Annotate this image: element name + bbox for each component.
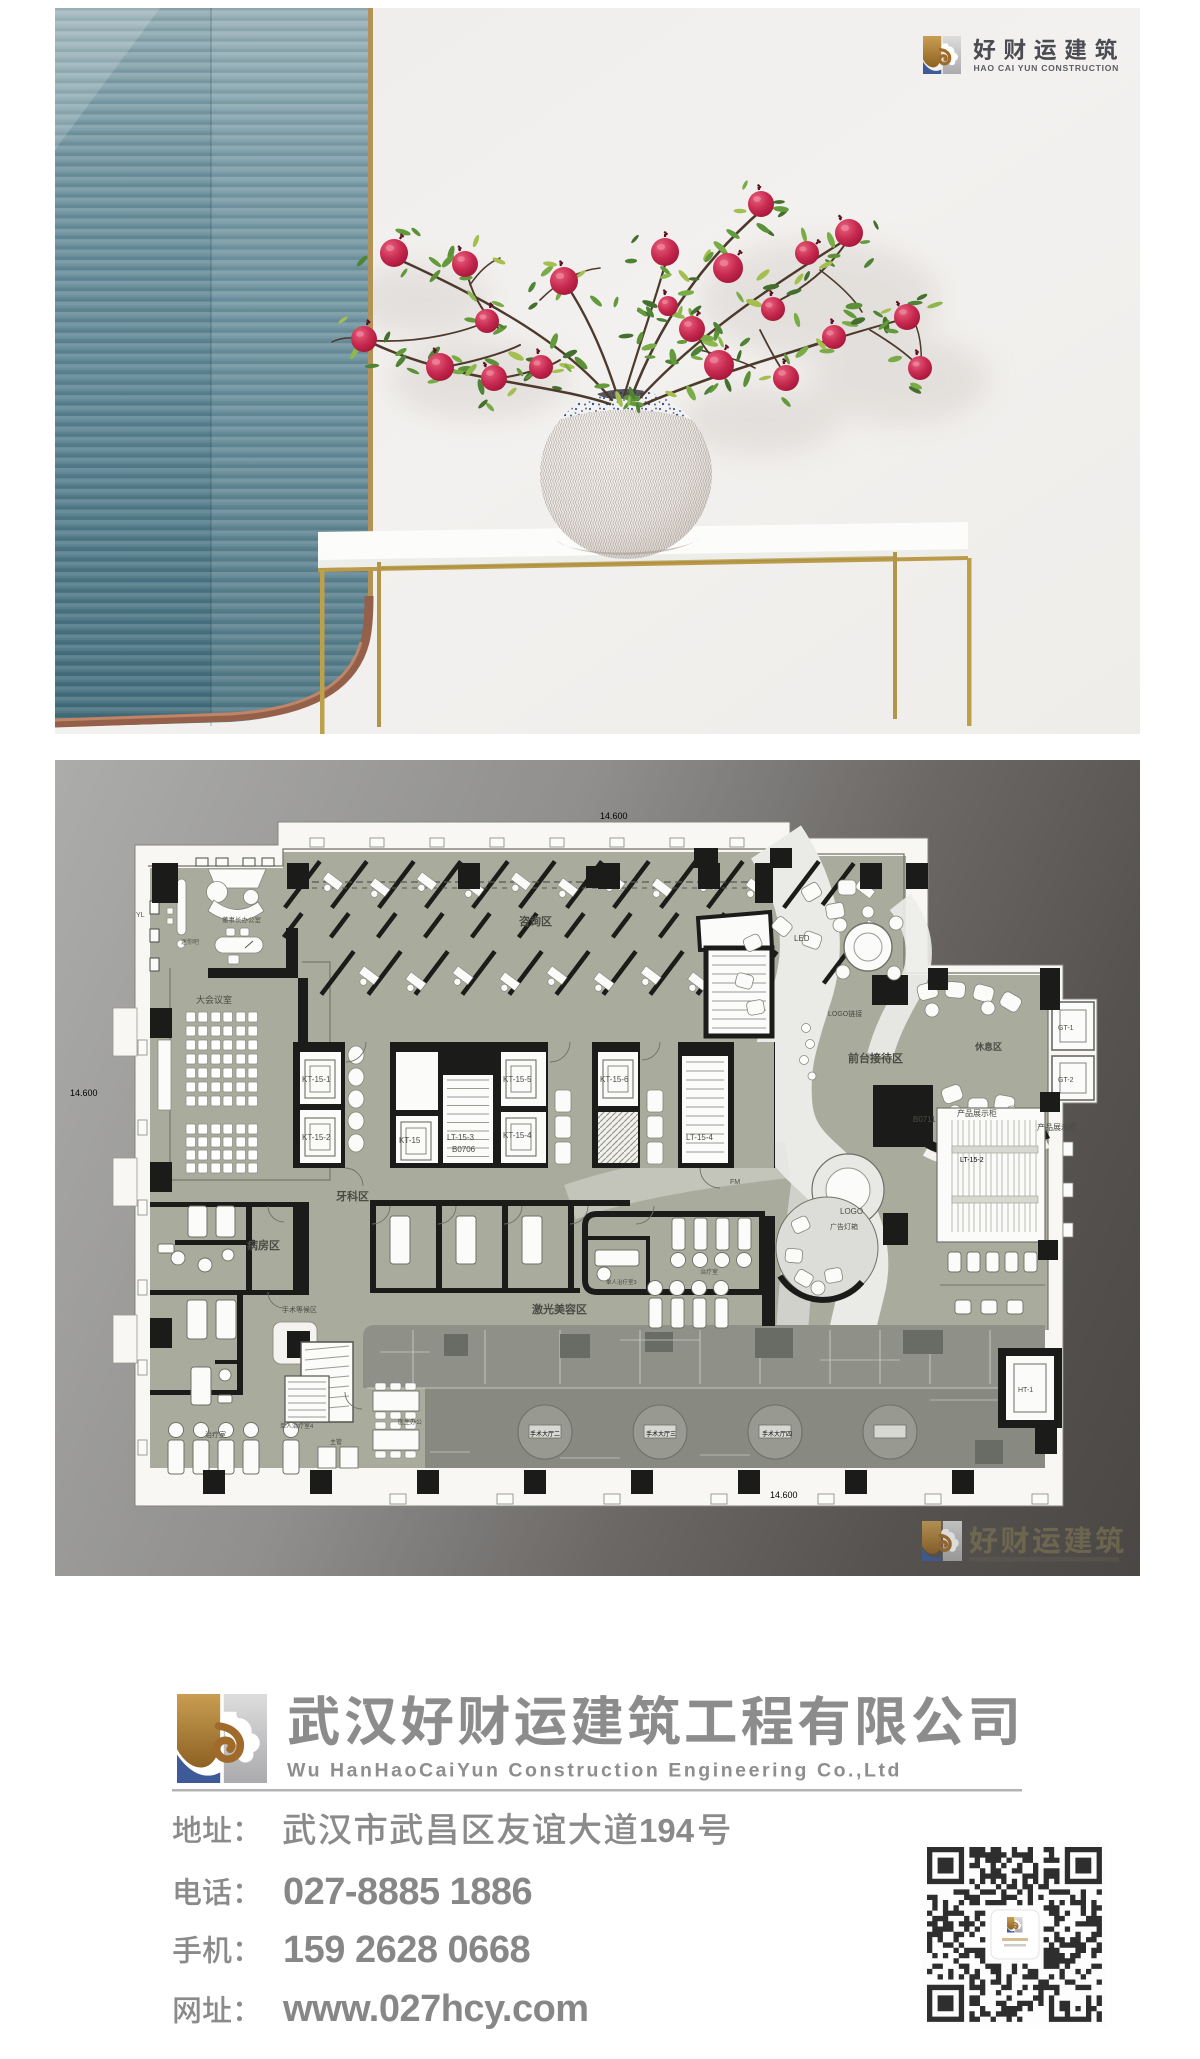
svg-text:B0711: B0711 [913,1115,936,1124]
svg-text:GT-2: GT-2 [1058,1077,1074,1084]
svg-text:KT-15-5: KT-15-5 [503,1075,532,1084]
svg-text:激光美容区: 激光美容区 [532,1302,587,1316]
svg-text:14.600: 14.600 [70,1088,98,1098]
svg-text:Wu HanHaoCaiYun Construction E: Wu HanHaoCaiYun Construction Engineering… [287,1760,902,1782]
svg-text:手术大厅二: 手术大厅二 [530,1430,560,1438]
svg-text:单人治疗室3: 单人治疗室3 [606,1278,637,1286]
svg-text:HAO CAI YUN CONSTRUCTION: HAO CAI YUN CONSTRUCTION [974,63,1120,73]
svg-text:休息区: 休息区 [974,1041,1002,1052]
svg-text:病房区: 病房区 [247,1238,280,1252]
svg-text:手术大厅四: 手术大厅四 [762,1430,792,1438]
svg-text:LED: LED [794,934,810,943]
svg-text:LT-15-2: LT-15-2 [960,1157,984,1164]
svg-text:手术等候区: 手术等候区 [282,1305,317,1314]
svg-text:KT-15: KT-15 [399,1136,421,1145]
svg-text:159 2628 0668: 159 2628 0668 [283,1929,530,1971]
svg-text:产品展示柜: 产品展示柜 [957,1108,997,1118]
svg-text:GT-1: GT-1 [1058,1025,1074,1032]
svg-text:LOGO链接: LOGO链接 [828,1009,862,1018]
svg-text:治疗室: 治疗室 [205,1430,226,1439]
svg-text:LT-15-3: LT-15-3 [447,1133,475,1142]
svg-text:单人治疗室4: 单人治疗室4 [280,1422,314,1430]
svg-text:www.027hcy.com: www.027hcy.com [282,1988,589,2030]
svg-text:医生办公: 医生办公 [398,1418,422,1426]
svg-text:主管: 主管 [330,1438,342,1446]
svg-text:LOGO: LOGO [840,1207,863,1216]
svg-text:194: 194 [639,1812,695,1849]
svg-text:14.600: 14.600 [600,811,628,821]
svg-text:B0706: B0706 [452,1145,476,1154]
svg-text:咨询区: 咨询区 [519,914,552,928]
svg-text:董事长办公室: 董事长办公室 [222,915,262,924]
svg-text:广告灯箱: 广告灯箱 [830,1222,858,1231]
svg-text:KT-15-2: KT-15-2 [302,1133,331,1142]
svg-text:KT-15-6: KT-15-6 [600,1075,629,1084]
svg-text:FM: FM [730,1179,740,1186]
svg-text:产品展示柜: 产品展示柜 [1037,1122,1077,1132]
svg-text:治疗室: 治疗室 [700,1268,718,1276]
svg-text:027-8885 1886: 027-8885 1886 [283,1871,532,1913]
svg-text:14.600: 14.600 [770,1490,798,1500]
svg-text:大会议室: 大会议室 [196,994,232,1005]
svg-text:YL: YL [136,912,145,919]
svg-text:HT-1: HT-1 [1018,1387,1033,1394]
svg-text:牙科区: 牙科区 [336,1189,369,1203]
svg-text:KT-15-4: KT-15-4 [503,1131,532,1140]
svg-text:手术大厅三: 手术大厅三 [646,1430,676,1438]
svg-text:前台接待区: 前台接待区 [848,1051,903,1065]
svg-text:迷你吧: 迷你吧 [181,938,199,946]
svg-text:KT-15-1: KT-15-1 [302,1075,331,1084]
svg-text:LT-15-4: LT-15-4 [686,1133,714,1142]
